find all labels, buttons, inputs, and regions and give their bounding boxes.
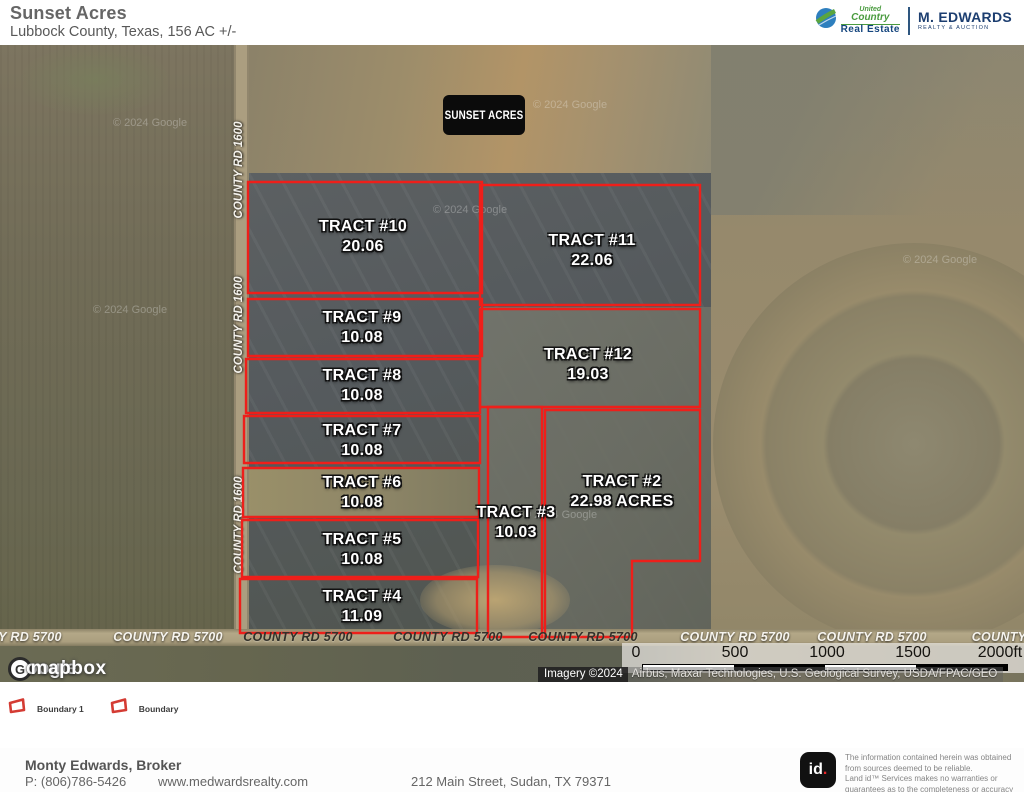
disclaimer-line-2: Land id™ Services makes no warranties or… — [845, 774, 1017, 792]
brand-divider — [908, 7, 910, 35]
legend-item-boundary-1[interactable]: Boundary 1 — [8, 698, 84, 719]
property-name-badge-text: SUNSET ACRES — [445, 108, 524, 122]
satellite-map[interactable]: SUNSET ACRES G oogle mapbox 050010001500… — [0, 45, 1024, 682]
boundary-polygon-icon — [110, 698, 128, 719]
map-provider-logos: G oogle mapbox — [8, 655, 107, 682]
page: Sunset Acres Lubbock County, Texas, 156 … — [0, 0, 1024, 792]
legend: Boundary 1 Boundary — [8, 698, 178, 719]
land-id-logo-text: id — [809, 761, 823, 778]
scale-tick-0: 0 — [632, 644, 641, 662]
tract-boundaries-overlay — [0, 45, 1024, 682]
road-label-county-rd-5700-0: Y RD 5700 — [0, 630, 62, 644]
agency-logo: M. EDWARDS REALTY & AUCTION — [918, 10, 1012, 31]
google-logo-letter: G — [15, 662, 25, 677]
scale-tick-1500: 1500 — [895, 644, 931, 662]
page-title: Sunset Acres — [10, 3, 127, 24]
broker-website[interactable]: www.medwardsrealty.com — [158, 774, 333, 789]
broker-contact: P: (806)786-5426 www.medwardsrealty.com … — [25, 774, 611, 789]
land-id-logo: id. — [800, 752, 836, 788]
tract-5-label: TRACT #510.08 — [323, 530, 402, 570]
road-label-county-rd-5700-1: COUNTY RD 5700 — [113, 630, 223, 644]
imagery-attribution-sources: Airbus, Maxar Technologies, U.S. Geologi… — [628, 667, 1004, 682]
tract-3-label: TRACT #310.03 — [477, 503, 556, 543]
road-label-county-rd-5700-7: COUNTY — [972, 630, 1024, 644]
page-subtitle: Lubbock County, Texas, 156 AC +/- — [10, 24, 236, 40]
tract-4-label: TRACT #411.09 — [323, 587, 402, 627]
legend-item-boundary[interactable]: Boundary — [110, 698, 179, 719]
legend-label: Boundary — [139, 704, 179, 714]
united-country-logo: United Country Real Estate — [815, 6, 900, 35]
tract-2-boundary[interactable] — [545, 410, 700, 637]
road-label-county-rd-5700-6: COUNTY RD 5700 — [817, 630, 927, 644]
tract-12-label: TRACT #1219.03 — [544, 345, 632, 385]
road-label-county-rd-5700-5: COUNTY RD 5700 — [680, 630, 790, 644]
tract-11-label: TRACT #1122.06 — [548, 231, 635, 271]
scale-tick-2000ft: 2000ft — [978, 644, 1022, 662]
broker-phone: P: (806)786-5426 — [25, 774, 130, 789]
brand-logos: United Country Real Estate M. EDWARDS RE… — [815, 6, 1012, 35]
tract-2-label: TRACT #222.98 ACRES — [570, 472, 673, 512]
road-label-county-rd-5700-2: COUNTY RD 5700 — [243, 630, 353, 644]
tract-10-label: TRACT #1020.06 — [319, 217, 407, 257]
agency-tagline: REALTY & AUCTION — [918, 25, 1012, 31]
footer: Monty Edwards, Broker P: (806)786-5426 w… — [0, 748, 1024, 792]
tract-6-label: TRACT #610.08 — [323, 473, 402, 513]
scale-tick-500: 500 — [722, 644, 749, 662]
disclaimer-line-1: The information contained herein was obt… — [845, 753, 1017, 774]
broker-address: 212 Main Street, Sudan, TX 79371 — [411, 774, 611, 789]
boundary-polygon-icon — [8, 698, 26, 719]
disclaimer: The information contained herein was obt… — [845, 753, 1017, 792]
united-country-wordmark: United Country Real Estate — [841, 6, 900, 35]
road-label-county-rd-5700-3: COUNTY RD 5700 — [393, 630, 503, 644]
land-id-logo-dot: . — [823, 761, 827, 778]
uc-bottom-text: Real Estate — [841, 25, 900, 35]
imagery-attribution-prefix: Imagery ©2024 — [538, 667, 628, 682]
imagery-attribution: Imagery ©2024 Airbus, Maxar Technologies… — [538, 667, 1003, 682]
tract-9-label: TRACT #910.08 — [323, 308, 402, 348]
globe-icon — [815, 7, 837, 34]
broker-name: Monty Edwards, Broker — [25, 757, 181, 773]
tract-8-label: TRACT #810.08 — [323, 366, 402, 406]
road-label-county-rd-5700-4: COUNTY RD 5700 — [528, 630, 638, 644]
scale-tick-1000: 1000 — [809, 644, 845, 662]
header: Sunset Acres Lubbock County, Texas, 156 … — [0, 0, 1024, 45]
legend-label: Boundary 1 — [37, 704, 84, 714]
mapbox-logo[interactable]: mapbox — [31, 658, 107, 680]
agency-name: M. EDWARDS — [918, 10, 1012, 25]
property-name-badge: SUNSET ACRES — [443, 95, 525, 135]
tract-7-label: TRACT #710.08 — [323, 421, 402, 461]
